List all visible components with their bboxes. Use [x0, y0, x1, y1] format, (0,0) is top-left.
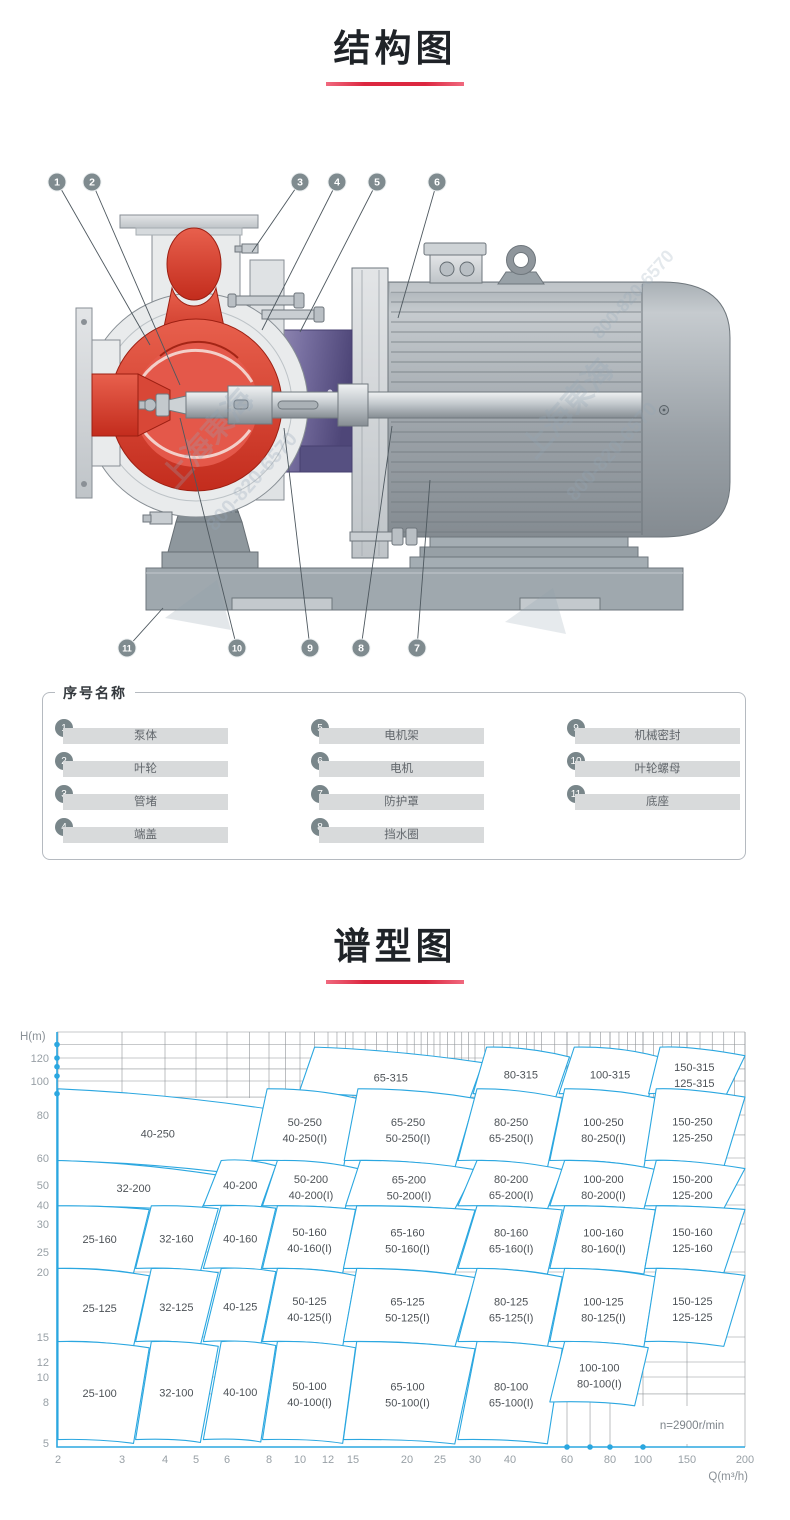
- chart-region-label: 100-100: [579, 1362, 619, 1374]
- structure-title-underline: [326, 82, 464, 86]
- chart-region-label: 100-315: [590, 1070, 630, 1082]
- chart-region-label: 40-250: [141, 1128, 175, 1140]
- callout-10: 10: [228, 639, 246, 657]
- legend-item-label: 泵体: [63, 728, 228, 744]
- callout-number: 11: [122, 644, 132, 654]
- callout-number: 8: [358, 643, 364, 655]
- x-tick-label: 15: [347, 1454, 359, 1466]
- x-tick-label: 20: [401, 1454, 413, 1466]
- chart-region-label: 50-100: [292, 1381, 326, 1393]
- chart-title: 谱型图: [0, 916, 790, 970]
- callout-1: 1: [48, 173, 66, 191]
- chart-region-50-160: [262, 1206, 355, 1273]
- legend-item-11: 11底座: [567, 783, 735, 816]
- legend-item-label: 电机架: [319, 728, 484, 744]
- chart-region-label: 65-100: [390, 1381, 424, 1393]
- chart-region-100-160: [550, 1206, 655, 1274]
- chart-region-label: 80-160(I): [581, 1244, 626, 1256]
- x-tick-label: 5: [193, 1454, 199, 1466]
- chart-region-label: 40-200(I): [289, 1190, 334, 1202]
- legend-item-9: 9机械密封: [567, 717, 735, 750]
- chart-region-label: 100-125: [583, 1296, 623, 1308]
- chart-region-label: 25-125: [83, 1303, 117, 1315]
- pump-structure-diagram: 上海東海 800-820-6570 上海東海 800-820-6570 800-…: [0, 160, 790, 680]
- y-tick-label: 60: [37, 1153, 49, 1165]
- callout-8: 8: [352, 639, 370, 657]
- chart-region-label: 50-250(I): [386, 1133, 431, 1145]
- x-tick-label: 8: [266, 1454, 272, 1466]
- chart-region-label: 50-125(I): [385, 1313, 430, 1325]
- chart-region-label: 80-250: [494, 1117, 528, 1129]
- chart-region-label: 50-160: [292, 1227, 326, 1239]
- chart-region-label: 25-100: [83, 1388, 117, 1400]
- callout-number: 5: [374, 177, 380, 189]
- chart-region-label: 40-160(I): [287, 1243, 332, 1255]
- chart-region-label: 40-200: [223, 1180, 257, 1192]
- y-tick-label: 120: [31, 1053, 49, 1065]
- x-tick-label: 80: [604, 1454, 616, 1466]
- y-tick-label: 80: [37, 1110, 49, 1122]
- legend-item-8: 8挡水圈: [311, 816, 479, 849]
- callout-number: 2: [89, 177, 95, 189]
- chart-region-label: 125-200: [672, 1190, 712, 1202]
- chart-region-label: 40-250(I): [282, 1133, 327, 1145]
- y-tick-label: 15: [37, 1332, 49, 1344]
- chart-region-label: 100-250: [583, 1117, 623, 1129]
- chart-region-label: 65-200(I): [489, 1190, 534, 1202]
- chart-region-label: 80-250(I): [581, 1133, 626, 1145]
- x-axis-dot: [564, 1444, 570, 1450]
- chart-region-label: 50-250: [288, 1117, 322, 1129]
- legend-item-1: 1泵体: [55, 717, 223, 750]
- legend-item-10: 10叶轮螺母: [567, 750, 735, 783]
- callout-3: 3: [291, 173, 309, 191]
- legend-item-2: 2叶轮: [55, 750, 223, 783]
- chart-region-label: 150-200: [672, 1174, 712, 1186]
- chart-region-label: 65-125: [390, 1297, 424, 1309]
- motor-terminal-box: [424, 243, 486, 283]
- motor-lifting-eye: [498, 246, 544, 285]
- chart-region-label: 40-160: [223, 1233, 257, 1245]
- chart-region-label: 50-200: [294, 1174, 328, 1186]
- callout-6: 6: [428, 173, 446, 191]
- callout-number: 1: [54, 177, 60, 189]
- legend-item-label: 挡水圈: [319, 827, 484, 843]
- callout-2: 2: [83, 173, 101, 191]
- y-tick-label: 12: [37, 1357, 49, 1369]
- x-tick-label: 150: [678, 1454, 696, 1466]
- chart-region-label: 80-125: [494, 1296, 528, 1308]
- callout-9: 9: [301, 639, 319, 657]
- pump-base: [146, 568, 683, 610]
- x-tick-label: 60: [561, 1454, 573, 1466]
- chart-region-label: 150-125: [672, 1296, 712, 1308]
- x-tick-label: 3: [119, 1454, 125, 1466]
- x-tick-label: 12: [322, 1454, 334, 1466]
- y-tick-label: 50: [37, 1180, 49, 1192]
- legend-item-3: 3管堵: [55, 783, 223, 816]
- chart-region-label: 50-100(I): [385, 1397, 430, 1409]
- chart-region-label: 50-160(I): [385, 1244, 430, 1256]
- x-tick-label: 4: [162, 1454, 168, 1466]
- y-tick-label: 10: [37, 1372, 49, 1384]
- chart-region-label: 40-100: [223, 1387, 257, 1399]
- x-tick-label: 200: [736, 1454, 754, 1466]
- x-axis-title: Q(m³/h): [708, 1471, 748, 1483]
- chart-region-label: 80-100: [494, 1381, 528, 1393]
- chart-region-label: 50-125: [292, 1296, 326, 1308]
- callout-number: 6: [434, 177, 440, 189]
- x-tick-label: 100: [634, 1454, 652, 1466]
- chart-region-label: 65-200: [392, 1174, 426, 1186]
- chart-region-label: 80-200(I): [581, 1190, 626, 1202]
- callout-number: 7: [414, 643, 420, 655]
- chart-region-label: 80-100(I): [577, 1378, 622, 1390]
- structure-diagram-title: 结构图: [0, 18, 790, 72]
- chart-region-65-160: [343, 1206, 475, 1275]
- legend-item-4: 4端盖: [55, 816, 223, 849]
- legend-panel: 序号名称 1泵体2叶轮3管堵4端盖5电机架6电机7防护罩8挡水圈9机械密封10叶…: [42, 692, 746, 860]
- chart-region-label: 65-250: [391, 1117, 425, 1129]
- chart-region-label: 65-160: [390, 1228, 424, 1240]
- chart-region-label: 80-160: [494, 1228, 528, 1240]
- callout-7: 7: [408, 639, 426, 657]
- chart-region-label: 125-125: [672, 1312, 712, 1324]
- chart-region-label: 150-250: [672, 1116, 712, 1128]
- pump-selection-chart: 65-31580-315100-315150-315125-31540-2505…: [0, 1010, 790, 1510]
- callout-11: 11: [118, 639, 136, 657]
- chart-region-label: 32-100: [159, 1387, 193, 1399]
- callout-number: 4: [334, 177, 340, 189]
- x-tick-label: 30: [469, 1454, 481, 1466]
- x-axis-dot: [607, 1444, 613, 1450]
- legend-grid: 1泵体2叶轮3管堵4端盖5电机架6电机7防护罩8挡水圈9机械密封10叶轮螺母11…: [55, 717, 735, 853]
- y-axis-title: H(m): [20, 1031, 46, 1043]
- y-tick-label: 8: [43, 1397, 49, 1409]
- legend-item-label: 管堵: [63, 794, 228, 810]
- chart-region-label: 80-200: [494, 1174, 528, 1186]
- legend-item-6: 6电机: [311, 750, 479, 783]
- x-tick-label: 10: [294, 1454, 306, 1466]
- y-tick-label: 30: [37, 1219, 49, 1231]
- x-axis-dot: [587, 1444, 593, 1450]
- y-tick-label: 100: [31, 1076, 49, 1088]
- chart-title-underline: [326, 980, 464, 984]
- legend-item-7: 7防护罩: [311, 783, 479, 816]
- chart-region-label: 100-160: [583, 1228, 623, 1240]
- chart-region-label: 32-160: [159, 1234, 193, 1246]
- y-tick-label: 20: [37, 1267, 49, 1279]
- callout-5: 5: [368, 173, 386, 191]
- x-tick-label: 6: [224, 1454, 230, 1466]
- chart-region-label: 125-250: [672, 1132, 712, 1144]
- legend-item-label: 叶轮: [63, 761, 228, 777]
- legend-item-5: 5电机架: [311, 717, 479, 750]
- y-axis-dot: [54, 1073, 60, 1079]
- y-axis-dot: [54, 1064, 60, 1070]
- y-tick-label: 5: [43, 1438, 49, 1450]
- callout-number: 3: [297, 177, 303, 189]
- chart-region-150-160: [645, 1206, 745, 1273]
- y-axis-dot: [54, 1055, 60, 1061]
- callout-number: 10: [232, 644, 242, 654]
- motor-feet: [410, 537, 648, 568]
- legend-item-label: 底座: [575, 794, 740, 810]
- chart-region-label: 80-315: [504, 1070, 538, 1082]
- x-tick-label: 40: [504, 1454, 516, 1466]
- chart-region-label: 65-125(I): [489, 1312, 534, 1324]
- callout-4: 4: [328, 173, 346, 191]
- chart-region-label: 65-315: [374, 1072, 408, 1084]
- legend-title: 序号名称: [55, 683, 135, 703]
- chart-region-label: 65-160(I): [489, 1244, 534, 1256]
- x-tick-label: 2: [55, 1454, 61, 1466]
- x-axis-dot: [640, 1444, 646, 1450]
- y-axis-dot: [54, 1042, 60, 1048]
- callout-number: 9: [307, 643, 313, 655]
- chart-region-label: 40-100(I): [287, 1397, 332, 1409]
- y-tick-label: 25: [37, 1247, 49, 1259]
- chart-region-label: 125-315: [674, 1078, 714, 1090]
- legend-item-label: 防护罩: [319, 794, 484, 810]
- chart-region-label: 40-125(I): [287, 1312, 332, 1324]
- x-tick-label: 25: [434, 1454, 446, 1466]
- y-axis-dot: [54, 1091, 60, 1097]
- legend-item-label: 机械密封: [575, 728, 740, 744]
- chart-region-label: 100-200: [583, 1174, 623, 1186]
- chart-region-label: 25-160: [83, 1234, 117, 1246]
- chart-region-label: 40-125: [223, 1302, 257, 1314]
- chart-region-label: 125-160: [672, 1243, 712, 1255]
- chart-region-label: 32-200: [117, 1183, 151, 1195]
- chart-region-label: 65-250(I): [489, 1133, 534, 1145]
- legend-item-label: 端盖: [63, 827, 228, 843]
- speed-annotation: n=2900r/min: [660, 1420, 724, 1432]
- chart-region-label: 50-200(I): [387, 1190, 432, 1202]
- chart-region-label: 80-125(I): [581, 1312, 626, 1324]
- chart-region-label: 32-125: [159, 1302, 193, 1314]
- product-page: 结构图: [0, 0, 790, 1520]
- chart-region-label: 150-315: [674, 1062, 714, 1074]
- legend-item-label: 叶轮螺母: [575, 761, 740, 777]
- chart-region-80-160: [458, 1206, 562, 1274]
- legend-item-label: 电机: [319, 761, 484, 777]
- y-tick-label: 40: [37, 1200, 49, 1212]
- chart-region-label: 150-160: [672, 1227, 712, 1239]
- chart-region-label: 65-100(I): [489, 1397, 534, 1409]
